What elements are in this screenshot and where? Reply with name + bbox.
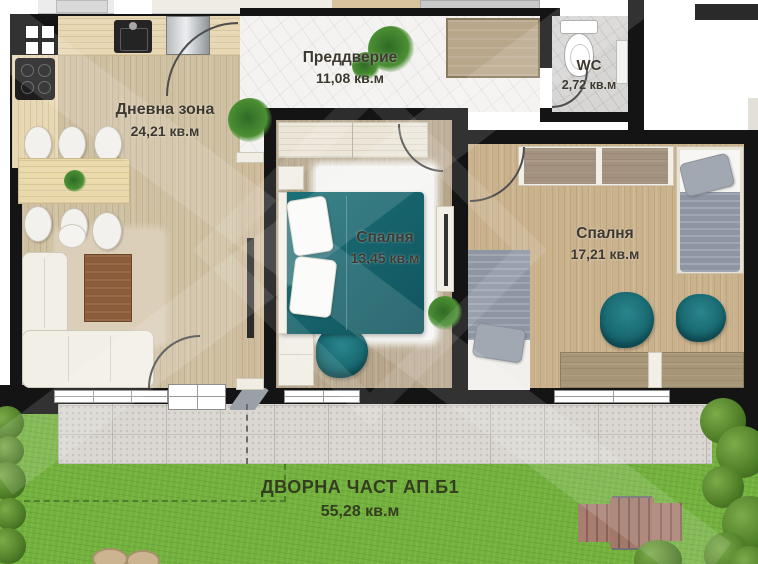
dining-chair — [24, 206, 52, 242]
terrace-step-gray — [230, 388, 278, 410]
shaft-window — [42, 26, 54, 38]
bedroom2-label: Спалня 17,21 кв.м — [540, 224, 670, 263]
bedroom1-label: Спалня 13,45 кв.м — [320, 228, 450, 267]
kitchen-sink-basin — [120, 28, 148, 51]
cooktop-burner — [38, 64, 51, 77]
neighbor-dark-block — [695, 4, 758, 20]
wc-name: WC — [546, 56, 632, 76]
sofa-cushion-seam — [44, 258, 45, 328]
wall-bedroom1-left — [264, 108, 276, 392]
sofa-cushion-seam — [68, 336, 69, 382]
tv-media-wall-cap-bottom — [236, 378, 264, 390]
shaft-window — [26, 42, 38, 54]
bedroom2-desk-divider — [648, 352, 662, 388]
sofa-cushion-seam — [110, 336, 111, 382]
living-room-area: 24,21 кв.м — [90, 122, 240, 140]
terrace-paving — [58, 404, 712, 464]
bedroom1-area: 13,45 кв.м — [320, 249, 450, 267]
terrace-expansion-joint — [246, 404, 248, 464]
window-frame-divider — [93, 391, 94, 402]
tv-flatscreen — [247, 238, 254, 338]
tv-media-wall-cap-top — [236, 152, 264, 163]
bedroom2-area: 17,21 кв.м — [540, 245, 670, 263]
deck-bench-planks-left — [578, 504, 612, 542]
floor-plan: Дневна зона 24,21 кв.м Преддверие 11,08 … — [0, 0, 758, 564]
sofa-section-horizontal — [22, 330, 154, 388]
bar-stool — [92, 212, 122, 250]
window-frame-line — [285, 396, 359, 397]
toilet-tank — [560, 20, 598, 34]
bedroom1-nightstand — [278, 166, 304, 190]
coffee-table — [84, 254, 132, 322]
yard-label: ДВОРНА ЧАСТ АП.Б1 55,28 кв.м — [198, 476, 522, 523]
wall-right — [744, 130, 758, 404]
bedroom2-bed-right-blanket — [680, 192, 740, 272]
kitchen-faucet — [129, 22, 137, 30]
cooktop-burner — [21, 64, 34, 77]
living-room-name: Дневна зона — [90, 100, 240, 121]
yard-area: 55,28 кв.м — [198, 502, 522, 523]
shaft-window — [26, 26, 38, 38]
deck-bench-planks-center — [610, 498, 654, 548]
entry-console-cabinet — [446, 18, 540, 78]
neighbor-sink — [56, 0, 108, 13]
wall-wc-bottom — [540, 112, 644, 122]
deck-bench-planks-right — [652, 503, 682, 541]
bedroom1-wardrobe-divider — [352, 122, 353, 158]
cooktop — [15, 58, 55, 100]
bedroom1-name: Спалня — [320, 228, 450, 248]
cooktop-burner — [21, 81, 34, 94]
window-frame-divider — [131, 391, 132, 402]
bedroom2-name: Спалня — [540, 224, 670, 244]
window-bedroom2 — [554, 390, 670, 403]
dining-chair — [24, 126, 52, 162]
window-frame-line — [555, 396, 669, 397]
table-plant — [64, 170, 86, 192]
wall-between-bedrooms — [452, 108, 468, 392]
bedroom1-plant — [428, 296, 462, 330]
entry-hall-label: Преддверие 11,08 кв.м — [275, 48, 425, 87]
living-room-label: Дневна зона 24,21 кв.м — [90, 100, 240, 140]
dining-chair — [58, 126, 86, 162]
bedroom1-bench-seam — [278, 354, 314, 355]
window-bedroom1 — [284, 390, 360, 403]
window-frame-divider — [613, 391, 614, 402]
wall-bedroom2-top — [452, 130, 746, 144]
bedroom1-bed-headboard — [278, 192, 287, 334]
stepping-stone — [92, 548, 128, 564]
window-living — [54, 390, 168, 403]
entry-hall-area: 11,08 кв.м — [275, 69, 425, 87]
wc-area: 2,72 кв.м — [546, 77, 632, 93]
window-frame-line — [55, 396, 167, 397]
terrace-step-diagonal — [230, 388, 269, 410]
window-frame-divider — [323, 391, 324, 402]
wc-label: WC 2,72 кв.м — [546, 56, 632, 93]
wall-entry-top — [240, 8, 560, 16]
wall-bedroom1-top — [264, 108, 452, 120]
cooktop-burner — [38, 81, 51, 94]
door-frame-divider — [197, 385, 198, 409]
entry-hall-name: Преддверие — [275, 48, 425, 68]
shaft-window — [42, 42, 54, 54]
bedroom2-wardrobe-unit — [524, 148, 596, 184]
side-table — [58, 224, 86, 248]
bedroom2-wardrobe-unit — [602, 148, 668, 184]
yard-name: ДВОРНА ЧАСТ АП.Б1 — [198, 476, 522, 499]
